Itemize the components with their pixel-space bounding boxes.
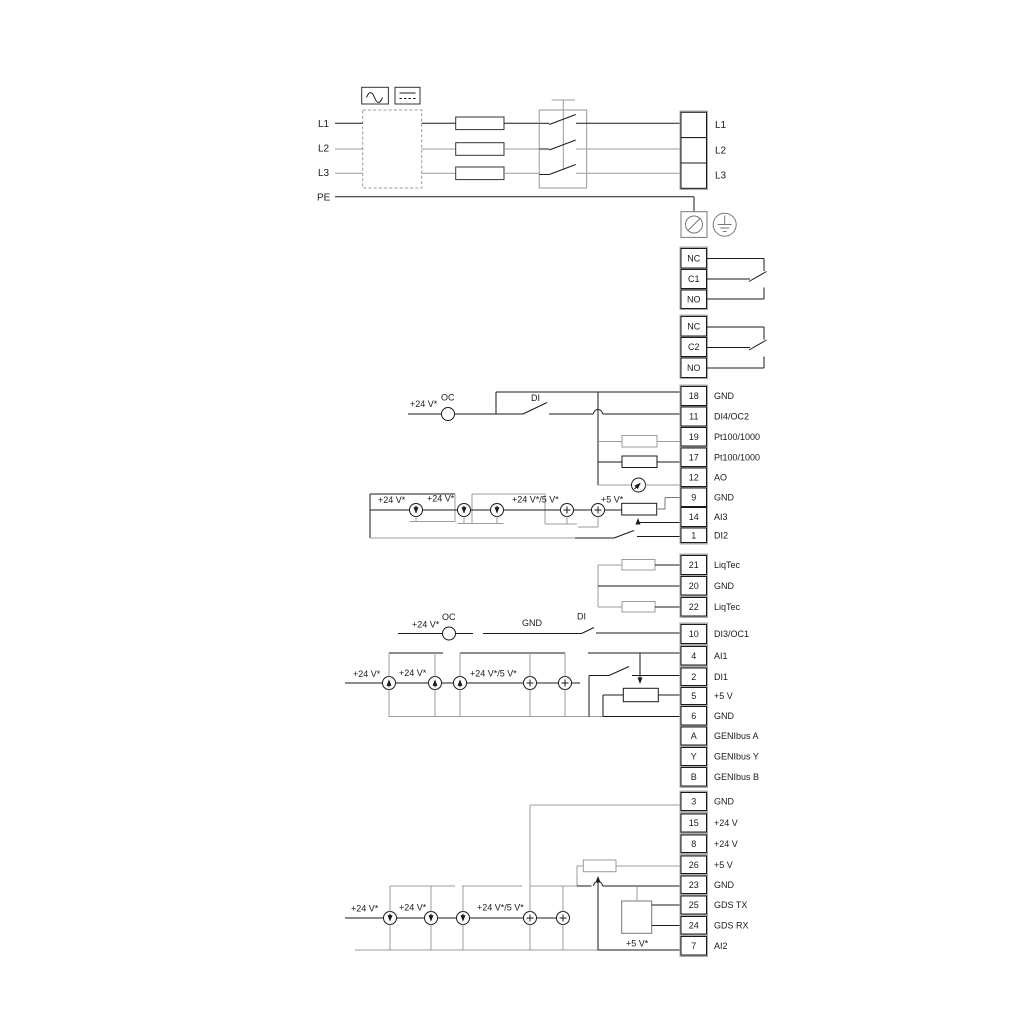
terminal-num: 12 bbox=[689, 472, 699, 482]
terminal-label: GND bbox=[714, 492, 735, 502]
di2-switch bbox=[614, 531, 634, 539]
current-source-icon bbox=[383, 677, 396, 690]
terminal-label: GND bbox=[714, 711, 735, 721]
di-label: DI bbox=[577, 612, 586, 622]
plus24v-label: +24 V* bbox=[399, 903, 427, 913]
relay2-contact bbox=[707, 327, 767, 368]
terminal-num: 20 bbox=[689, 581, 699, 591]
potentiometer bbox=[583, 860, 616, 872]
mains-label-l1: L1 bbox=[318, 119, 330, 130]
mains-right-l1: L1 bbox=[715, 120, 727, 131]
terminal-num: 4 bbox=[691, 651, 696, 661]
current-source-icon bbox=[429, 677, 442, 690]
plus24v-label: +24 V* bbox=[412, 620, 440, 630]
mains-section: L1 L2 L3 PE bbox=[317, 87, 736, 237]
terminal-num: A bbox=[691, 731, 697, 741]
terminal-label: AI1 bbox=[714, 651, 728, 661]
terminal-num: 5 bbox=[691, 691, 696, 701]
pt100-sensor-1 bbox=[622, 436, 657, 448]
mains-label-l3: L3 bbox=[318, 168, 330, 179]
potentiometer bbox=[623, 688, 658, 701]
current-source-icon bbox=[458, 504, 471, 517]
terminal-num: 25 bbox=[689, 900, 699, 910]
mains-right-l2: L2 bbox=[715, 146, 727, 157]
ac-symbol-icon bbox=[362, 87, 389, 104]
terminal-num: 17 bbox=[689, 452, 699, 462]
liqtec-sensor-1 bbox=[622, 560, 655, 571]
oc-label: OC bbox=[442, 612, 456, 622]
terminal-label: GND bbox=[714, 797, 735, 807]
pt100-ao-circuit bbox=[598, 392, 681, 492]
oc-output-icon bbox=[443, 627, 456, 640]
terminal-label: DI3/OC1 bbox=[714, 629, 749, 639]
ai1-di1-circuit: +24 V* +24 V* +24 V*/5 V* bbox=[345, 653, 681, 717]
terminal-label: LiqTec bbox=[714, 560, 741, 570]
terminal-num: 26 bbox=[689, 860, 699, 870]
relay1-c1: C1 bbox=[688, 274, 700, 284]
current-source-icon bbox=[425, 912, 438, 925]
terminal-num: 14 bbox=[689, 512, 699, 522]
mains-terminal-block: L1 L2 L3 bbox=[680, 111, 727, 191]
plus24v-label: +24 V* bbox=[353, 669, 381, 679]
relay2-block: NC C2 NO bbox=[680, 315, 767, 380]
relay2-c2: C2 bbox=[688, 342, 700, 352]
terminal-num: 23 bbox=[689, 880, 699, 890]
terminal-label: +24 V bbox=[714, 818, 738, 828]
fuse-l2 bbox=[456, 143, 504, 156]
ai3-di2-circuit: +24 V* +24 V* +24 V*/5 V* +5 V* bbox=[370, 494, 681, 539]
terminal-num: 9 bbox=[691, 492, 696, 502]
terminal-label: Pt100/1000 bbox=[714, 452, 760, 462]
terminal-label: GDS RX bbox=[714, 921, 749, 931]
relay1-nc: NC bbox=[687, 254, 700, 264]
terminal-label: GND bbox=[714, 880, 735, 890]
terminal-num: B bbox=[691, 772, 697, 782]
terminal-label: GENIbus Y bbox=[714, 752, 759, 762]
terminal-num: 15 bbox=[689, 818, 699, 828]
relay1-block: NC C1 NO bbox=[680, 247, 767, 311]
terminal-num: 6 bbox=[691, 711, 696, 721]
oc-label: OC bbox=[441, 393, 455, 403]
terminal-num: 3 bbox=[691, 797, 696, 807]
mains-label-l2: L2 bbox=[318, 144, 330, 155]
pt100-sensor-2 bbox=[622, 456, 657, 468]
terminal-label: LiqTec bbox=[714, 602, 741, 612]
plus24v-label: +24 V* bbox=[410, 399, 438, 409]
terminal-label: GDS TX bbox=[714, 900, 747, 910]
current-source-icon bbox=[454, 677, 467, 690]
io-strip-1: 18 11 19 17 12 9 14 1 GND DI4/OC2 Pt100/… bbox=[680, 385, 761, 545]
oc-output-icon bbox=[442, 408, 455, 421]
terminal-num: 18 bbox=[689, 391, 699, 401]
wiring-diagram: L1 L2 L3 PE bbox=[0, 0, 1024, 1024]
di-label: DI bbox=[531, 393, 540, 403]
terminal-num: 11 bbox=[689, 412, 698, 422]
terminal-label: +24 V bbox=[714, 839, 738, 849]
liqtec-sensor-2 bbox=[622, 602, 655, 613]
plus24v-label: +24 V* bbox=[378, 495, 406, 505]
terminal-label: GENIbus B bbox=[714, 772, 759, 782]
fuse-l1 bbox=[456, 117, 504, 130]
terminal-num: 10 bbox=[689, 629, 699, 639]
terminal-label: DI1 bbox=[714, 672, 728, 682]
terminal-label: AO bbox=[714, 472, 727, 482]
relay2-nc: NC bbox=[687, 322, 700, 332]
terminal-label: AI3 bbox=[714, 512, 728, 522]
terminal-label: +5 V bbox=[714, 691, 733, 701]
current-source-icon bbox=[410, 504, 423, 517]
relay2-no: NO bbox=[687, 363, 701, 373]
current-source-icon bbox=[457, 912, 470, 925]
mains-label-pe: PE bbox=[317, 193, 331, 204]
terminal-num: 24 bbox=[689, 921, 699, 931]
plus24v-label: +24 V* bbox=[351, 904, 379, 914]
plus24v-label: +24 V* bbox=[399, 668, 427, 678]
di4-oc2-circuit: +24 V* OC DI bbox=[408, 392, 681, 421]
mains-right-l3: L3 bbox=[715, 171, 727, 182]
dc-symbol-icon bbox=[395, 87, 420, 104]
filter-box bbox=[363, 110, 422, 188]
ground-icon bbox=[713, 213, 736, 236]
gnd-label: GND bbox=[522, 618, 543, 628]
terminal-label: +5 V bbox=[714, 860, 733, 870]
main-switch bbox=[539, 100, 586, 188]
voltage-source-icon bbox=[561, 504, 574, 517]
di4-switch bbox=[523, 403, 547, 415]
terminal-label: DI4/OC2 bbox=[714, 412, 749, 422]
terminal-num: 7 bbox=[691, 941, 696, 951]
voltage-source-icon bbox=[592, 504, 605, 517]
terminal-label: GND bbox=[714, 391, 735, 401]
io-strip-3: 3 15 8 26 23 25 24 7 GND +24 V +24 V +5 … bbox=[680, 791, 749, 958]
terminal-label: GND bbox=[714, 581, 735, 591]
terminal-label: Pt100/1000 bbox=[714, 432, 760, 442]
terminal-num: 21 bbox=[689, 560, 699, 570]
di3-switch bbox=[582, 628, 595, 634]
plus5v-label: +5 V* bbox=[601, 495, 624, 505]
fuse-l3 bbox=[456, 167, 504, 180]
terminal-label: DI2 bbox=[714, 530, 728, 540]
plus24v-5v-label: +24 V*/5 V* bbox=[512, 495, 559, 505]
terminal-num: Y bbox=[691, 752, 697, 762]
terminal-label: GENIbus A bbox=[714, 731, 759, 741]
ai2-gds-circuit: +24 V* +24 V* +24 V*/5 V* +5 V* bbox=[345, 805, 681, 950]
io-strip-2: 10 4 2 5 6 A Y B DI3/OC1 AI1 DI1 +5 V GN… bbox=[680, 623, 760, 789]
voltage-source-icon bbox=[524, 677, 537, 690]
plus24v-5v-label: +24 V*/5 V* bbox=[470, 669, 517, 679]
gds-sensor-box bbox=[622, 901, 652, 933]
voltage-source-icon bbox=[559, 677, 572, 690]
voltage-source-icon bbox=[557, 912, 570, 925]
screw-terminal-icon bbox=[681, 212, 707, 238]
potentiometer bbox=[622, 503, 657, 515]
di3-oc1-circuit: +24 V* OC GND DI bbox=[398, 612, 681, 641]
current-source-icon bbox=[491, 504, 504, 517]
plus24v-5v-label: +24 V*/5 V* bbox=[477, 903, 524, 913]
terminal-num: 8 bbox=[691, 839, 696, 849]
plus24v-label: +24 V* bbox=[427, 494, 455, 504]
terminal-num: 19 bbox=[689, 432, 699, 442]
plus5v-label: +5 V* bbox=[626, 939, 649, 949]
di1-switch bbox=[609, 667, 629, 676]
terminal-num: 1 bbox=[691, 530, 696, 540]
relay1-contact bbox=[707, 259, 767, 300]
terminal-num: 22 bbox=[689, 602, 699, 612]
relay1-no: NO bbox=[687, 294, 701, 304]
current-source-icon bbox=[384, 912, 397, 925]
liqtec-section: 21 20 22 LiqTec GND LiqTec bbox=[598, 554, 741, 619]
terminal-label: AI2 bbox=[714, 941, 728, 951]
voltage-source-icon bbox=[524, 912, 537, 925]
terminal-num: 2 bbox=[691, 672, 696, 682]
